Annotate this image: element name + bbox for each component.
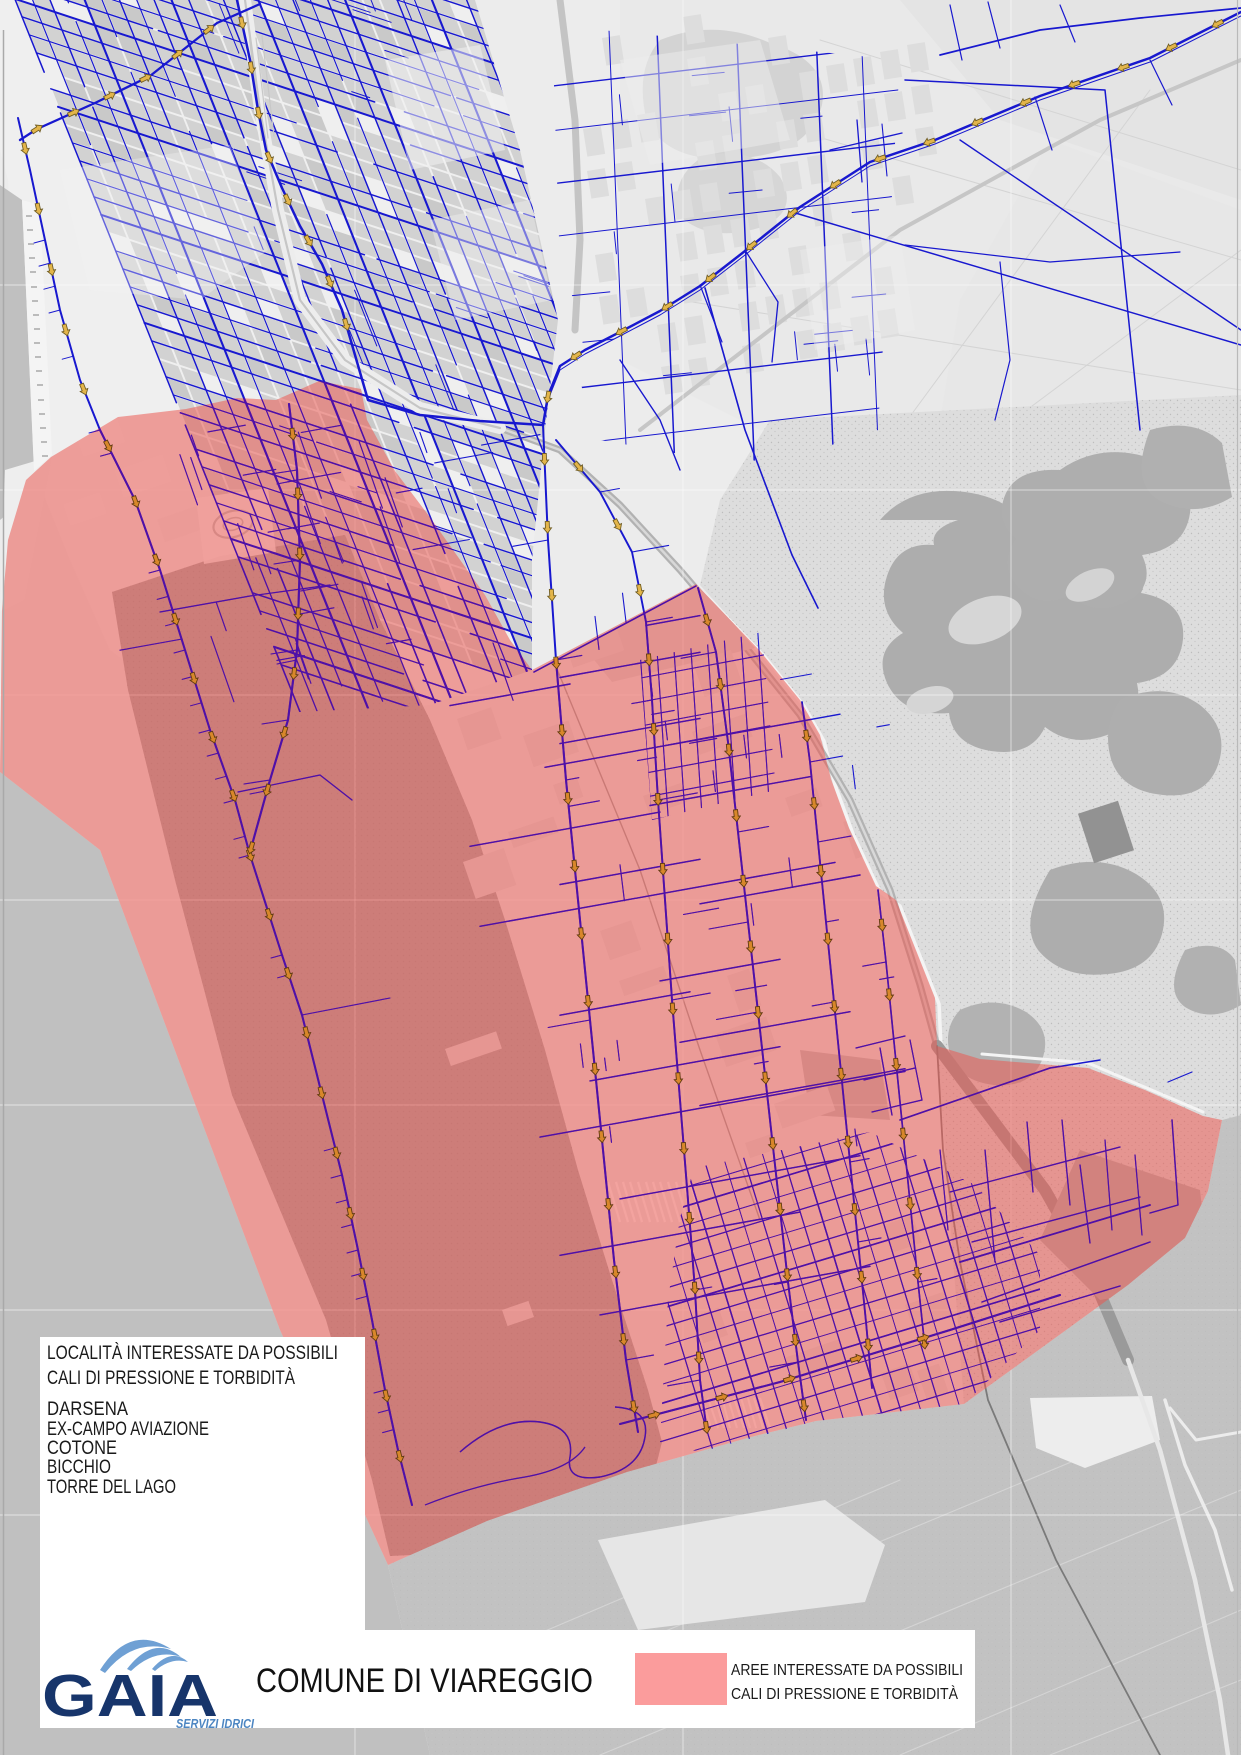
svg-text:SERVIZI IDRICI: SERVIZI IDRICI [176,1716,254,1731]
svg-text:CALI DI PRESSIONE E TORBIDITÀ: CALI DI PRESSIONE E TORBIDITÀ [47,1366,295,1389]
svg-text:DARSENA: DARSENA [47,1398,128,1420]
svg-text:TORRE DEL LAGO: TORRE DEL LAGO [47,1476,176,1498]
svg-text:AREE INTERESSATE DA POSSIBILI: AREE INTERESSATE DA POSSIBILI [731,1662,963,1679]
svg-text:LOCALITÀ INTERESSATE DA POSSIB: LOCALITÀ INTERESSATE DA POSSIBILI [47,1341,338,1364]
svg-text:CALI DI PRESSIONE E TORBIDITÀ: CALI DI PRESSIONE E TORBIDITÀ [731,1686,959,1703]
svg-text:BICCHIO: BICCHIO [47,1456,111,1478]
svg-text:COMUNE DI VIAREGGIO: COMUNE DI VIAREGGIO [256,1662,593,1700]
